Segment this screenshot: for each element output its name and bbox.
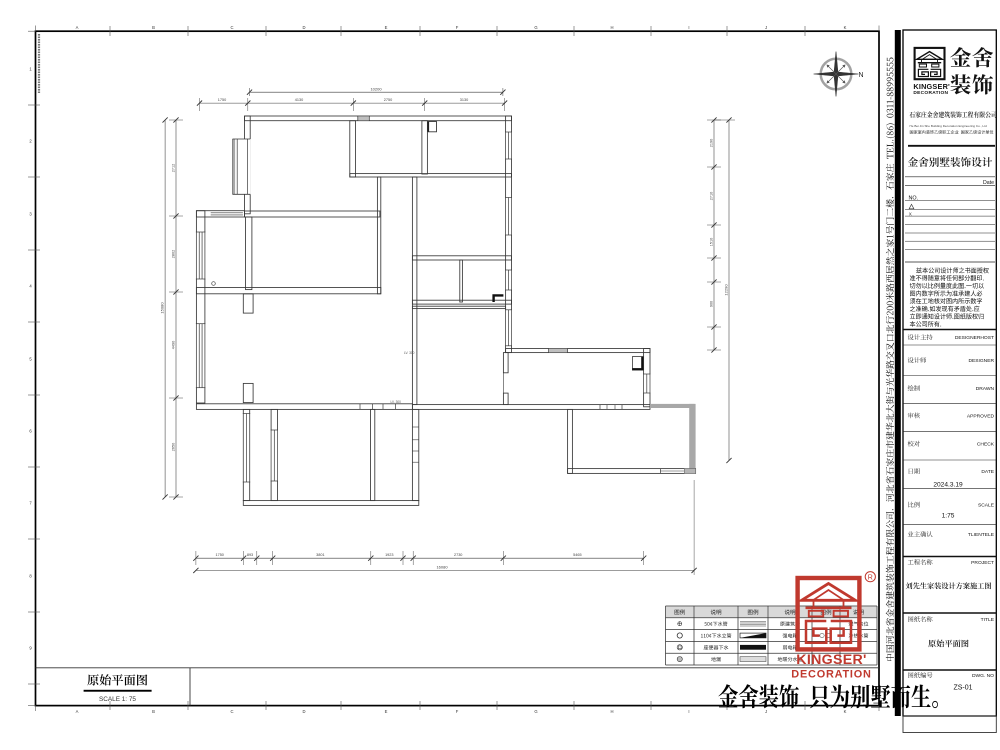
svg-text:4490: 4490 [172, 341, 176, 349]
svg-text:2750: 2750 [384, 98, 392, 102]
svg-text:DESIGNERHOST: DESIGNERHOST [955, 335, 994, 341]
svg-text:10200: 10200 [370, 87, 382, 92]
svg-text:A: A [76, 709, 79, 714]
svg-text:DESIGNER: DESIGNER [968, 358, 994, 364]
svg-text:F: F [456, 25, 459, 30]
svg-text:KINGSER': KINGSER' [796, 652, 866, 668]
svg-text:K: K [844, 25, 847, 30]
svg-text:A: A [76, 25, 79, 30]
svg-text:2650: 2650 [172, 443, 176, 451]
svg-text:DWG. NO: DWG. NO [972, 673, 994, 679]
svg-text:He Bei Jin She Building Decora: He Bei Jin She Building Decoration Engin… [910, 124, 987, 128]
svg-text:PROJECT: PROJECT [971, 560, 994, 566]
svg-text:12290: 12290 [724, 284, 729, 296]
svg-text:I: I [688, 25, 689, 30]
svg-text:2712: 2712 [172, 164, 176, 172]
svg-text:G: G [534, 25, 537, 30]
svg-text:893: 893 [247, 553, 253, 557]
svg-text:LV. 300: LV. 300 [404, 351, 415, 355]
svg-text:2024.3.19: 2024.3.19 [933, 481, 963, 488]
svg-text:C: C [230, 709, 233, 714]
svg-text:LV. 300: LV. 300 [391, 400, 402, 404]
svg-text:SCALE: SCALE [978, 503, 995, 509]
svg-text:D: D [302, 25, 305, 30]
svg-text:1510: 1510 [710, 238, 714, 246]
svg-text:G: G [534, 709, 537, 714]
svg-text:2802: 2802 [172, 250, 176, 258]
svg-text:H: H [610, 25, 613, 30]
svg-text:1750: 1750 [215, 553, 223, 557]
svg-text:16080: 16080 [436, 564, 448, 569]
svg-text:B: B [152, 25, 155, 30]
svg-text:B: B [152, 709, 155, 714]
svg-text:E: E [385, 709, 388, 714]
svg-text:I: I [688, 709, 689, 714]
svg-text:N: N [859, 72, 864, 79]
svg-text:APPROVED: APPROVED [967, 413, 995, 419]
svg-text:F: F [456, 709, 459, 714]
svg-text:D: D [302, 709, 305, 714]
svg-text:J: J [765, 25, 767, 30]
svg-text:C: C [230, 25, 233, 30]
svg-text:X: X [909, 211, 912, 216]
svg-text:1750: 1750 [218, 98, 226, 102]
svg-text:TITLE: TITLE [981, 617, 995, 623]
svg-text:900: 900 [710, 301, 714, 307]
svg-text:ZS-01: ZS-01 [953, 685, 972, 692]
svg-text:TLIENTELE: TLIENTELE [968, 532, 995, 538]
svg-text:K: K [844, 709, 847, 714]
svg-text:H: H [610, 709, 613, 714]
svg-text:15080: 15080 [160, 302, 165, 314]
svg-text:3130: 3130 [460, 98, 468, 102]
svg-text:J: J [765, 709, 767, 714]
svg-text:2730: 2730 [454, 553, 462, 557]
svg-text:R: R [868, 574, 873, 581]
svg-text:5465: 5465 [573, 553, 581, 557]
svg-text:DECORATION: DECORATION [791, 668, 871, 680]
svg-text:2190: 2190 [710, 139, 714, 147]
svg-text:DECORATION: DECORATION [913, 90, 948, 96]
svg-text:1923: 1923 [385, 553, 393, 557]
svg-text:DATE: DATE [981, 469, 994, 475]
svg-text:KINGSER': KINGSER' [913, 82, 950, 91]
svg-text:DRAWN: DRAWN [976, 386, 995, 392]
svg-text:SCALE 1: 75: SCALE 1: 75 [99, 696, 136, 703]
svg-text:4130: 4130 [295, 98, 303, 102]
svg-text:3801: 3801 [316, 553, 324, 557]
svg-text:1:75: 1:75 [942, 513, 955, 520]
svg-text:CHECK: CHECK [977, 442, 995, 448]
svg-text:2710: 2710 [710, 192, 714, 200]
svg-text:E: E [385, 25, 388, 30]
